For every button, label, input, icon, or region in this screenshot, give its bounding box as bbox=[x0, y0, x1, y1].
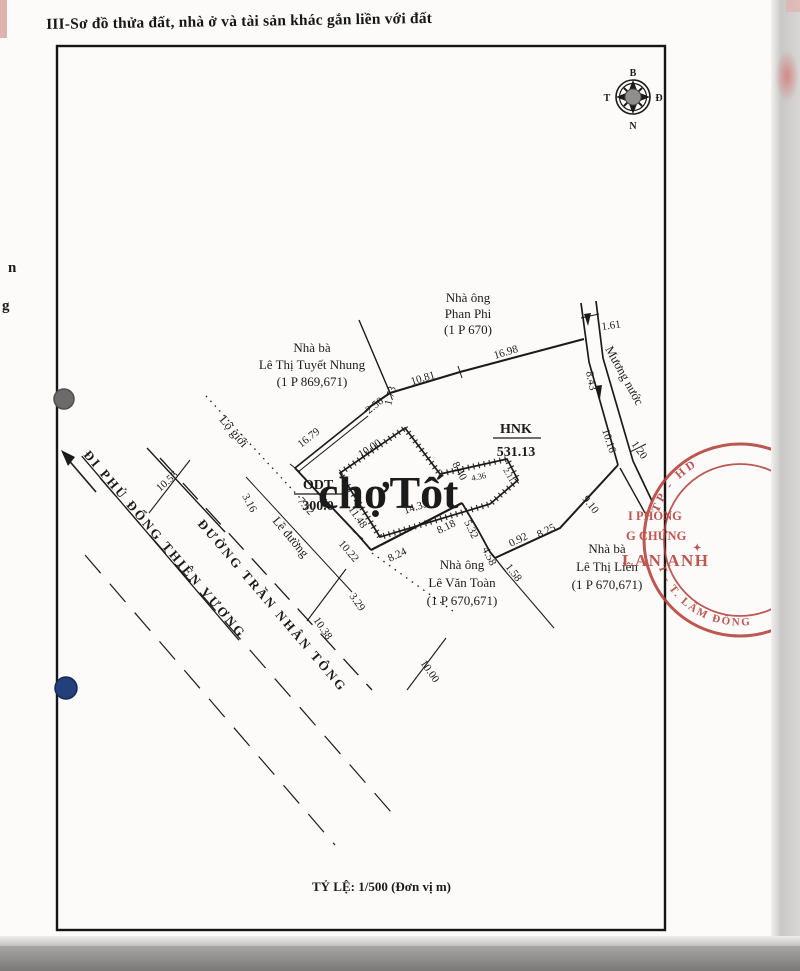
neighbor-tuyet-nhung: Nhà bà Lê Thị Tuyết Nhung (1 P 869,671) bbox=[259, 340, 366, 389]
canal-left-continuation bbox=[620, 468, 645, 513]
measurement: 2.11 bbox=[501, 466, 517, 484]
measurement: 10.81 bbox=[409, 369, 436, 388]
blue-marker-dot bbox=[55, 677, 77, 699]
measurement: 3.16 bbox=[239, 492, 259, 515]
neighbor-line: (1 P 670,671) bbox=[427, 593, 498, 608]
compass-icon: B Đ N T bbox=[604, 68, 663, 132]
neighbor-line: Nhà bà bbox=[293, 340, 330, 355]
measurement: 1.61 bbox=[601, 318, 622, 333]
neighbor-line: Lê Văn Toàn bbox=[428, 575, 496, 590]
measurement: 16.79 bbox=[295, 425, 322, 450]
scan-artifact-right-pink bbox=[775, 50, 799, 102]
hnk-area: 531.13 bbox=[497, 445, 536, 460]
measurement: 1.58 bbox=[503, 561, 525, 584]
neighbor-line: Nhà ông bbox=[440, 557, 485, 572]
road-width-line-mid bbox=[307, 569, 346, 621]
odt-code: ODT bbox=[303, 478, 334, 493]
stamp-line2: G CHỨNG bbox=[626, 529, 687, 543]
gray-marker-dot bbox=[54, 389, 74, 409]
scan-edge-bottom-light bbox=[0, 936, 800, 946]
neighbor-line: Nhà bà bbox=[588, 541, 625, 556]
neighbor-line: Nhà ông bbox=[446, 290, 491, 305]
measurement: 9.10 bbox=[580, 493, 602, 516]
scale-label: TỶ LỆ: 1/500 (Đơn vị m) bbox=[312, 879, 451, 894]
stamp-star-icon: ✦ bbox=[693, 543, 701, 554]
measurement: 10.38 bbox=[311, 615, 335, 643]
measurement: 4.36 bbox=[470, 470, 487, 483]
neighbor-line: (1 P 670,671) bbox=[572, 577, 643, 592]
scan-artifact-top-right bbox=[786, 0, 800, 12]
hnk-code: HNK bbox=[500, 422, 532, 437]
measurement: 8.24 bbox=[386, 545, 409, 564]
canal-flow-arrow bbox=[584, 313, 591, 326]
stamp-arc-top: TP - HD bbox=[648, 456, 700, 514]
compass-east-label: Đ bbox=[655, 93, 662, 104]
watermark-text: chợTốt bbox=[318, 467, 459, 518]
le-duong-label: Lề đường bbox=[270, 514, 312, 561]
edge-fragment: g bbox=[2, 298, 10, 314]
neighbor-line: Lê Thị Tuyết Nhung bbox=[259, 357, 366, 372]
measurement: 8.25 bbox=[535, 521, 558, 540]
survey-drawing: chợTốt B Đ N T bbox=[0, 0, 800, 971]
neighbor-phan-phi: Nhà ông Phan Phi (1 P 670) bbox=[444, 290, 492, 337]
direction-arrow-head bbox=[61, 450, 75, 466]
scan-edge-right bbox=[771, 0, 800, 971]
lo-gioi-label: Lộ giới bbox=[217, 413, 252, 451]
compass-south-label: N bbox=[629, 121, 637, 132]
lo-gioi-dotted-line bbox=[206, 396, 300, 498]
parcel-hnk-label: HNK 531.13 bbox=[493, 422, 541, 460]
scan-edge-bottom bbox=[0, 946, 800, 971]
stamp-arc-bottom: T - T. LÂM ĐỒNG bbox=[655, 563, 752, 628]
measurement: 10.16 bbox=[599, 427, 618, 455]
neighbor-line: Phan Phi bbox=[445, 306, 492, 321]
svg-text:TP - HD: TP - HD bbox=[648, 456, 700, 514]
measurement: 3.29 bbox=[347, 591, 368, 614]
scanned-survey-page: III-Sơ đồ thửa đất, nhà ở và tài sản khá… bbox=[0, 0, 800, 971]
measurement: 5.32 bbox=[461, 518, 480, 541]
svg-text:T - T. LÂM ĐỒNG: T - T. LÂM ĐỒNG bbox=[655, 563, 752, 628]
compass-west-label: T bbox=[604, 93, 611, 104]
measurement: 10.00 bbox=[356, 437, 384, 461]
scan-artifact-left bbox=[0, 0, 7, 38]
compass-north-label: B bbox=[630, 68, 637, 79]
neighbor-line: (1 P 869,671) bbox=[277, 374, 348, 389]
stamp-line1: I PHÒNG bbox=[628, 509, 682, 523]
neighbor-line: (1 P 670) bbox=[444, 322, 492, 337]
measurement: 8.43 bbox=[583, 370, 599, 392]
measurement: 10.56 bbox=[154, 469, 181, 495]
measurement: 1.73 bbox=[382, 385, 399, 407]
edge-fragment: n bbox=[8, 260, 17, 276]
measurement: 10.22 bbox=[336, 538, 361, 565]
